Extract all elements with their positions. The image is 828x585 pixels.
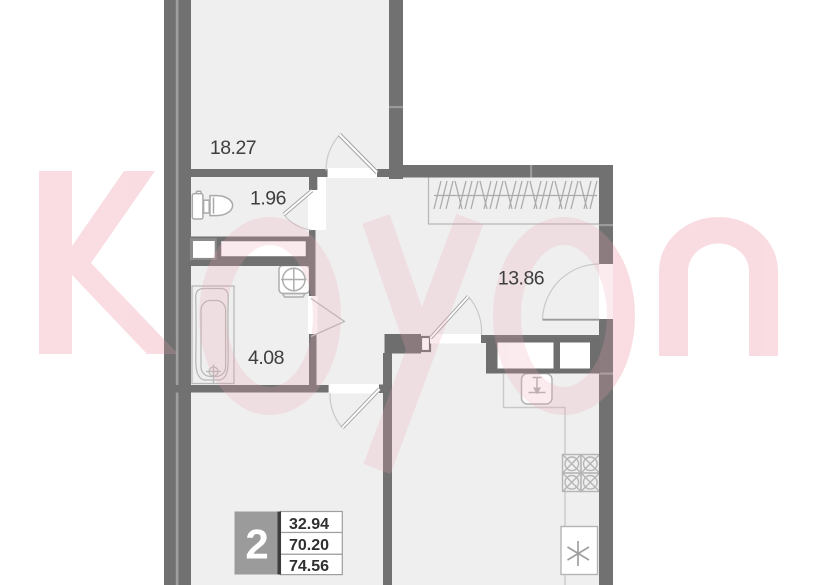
svg-text:18.27: 18.27: [210, 137, 256, 159]
svg-text:13.86: 13.86: [498, 268, 544, 290]
svg-text:1.96: 1.96: [250, 188, 286, 210]
svg-text:4.08: 4.08: [248, 347, 284, 369]
svg-text:32.94: 32.94: [289, 516, 329, 533]
svg-text:70.20: 70.20: [289, 537, 329, 554]
svg-text:2: 2: [245, 521, 268, 568]
svg-text:74.56: 74.56: [289, 558, 329, 575]
